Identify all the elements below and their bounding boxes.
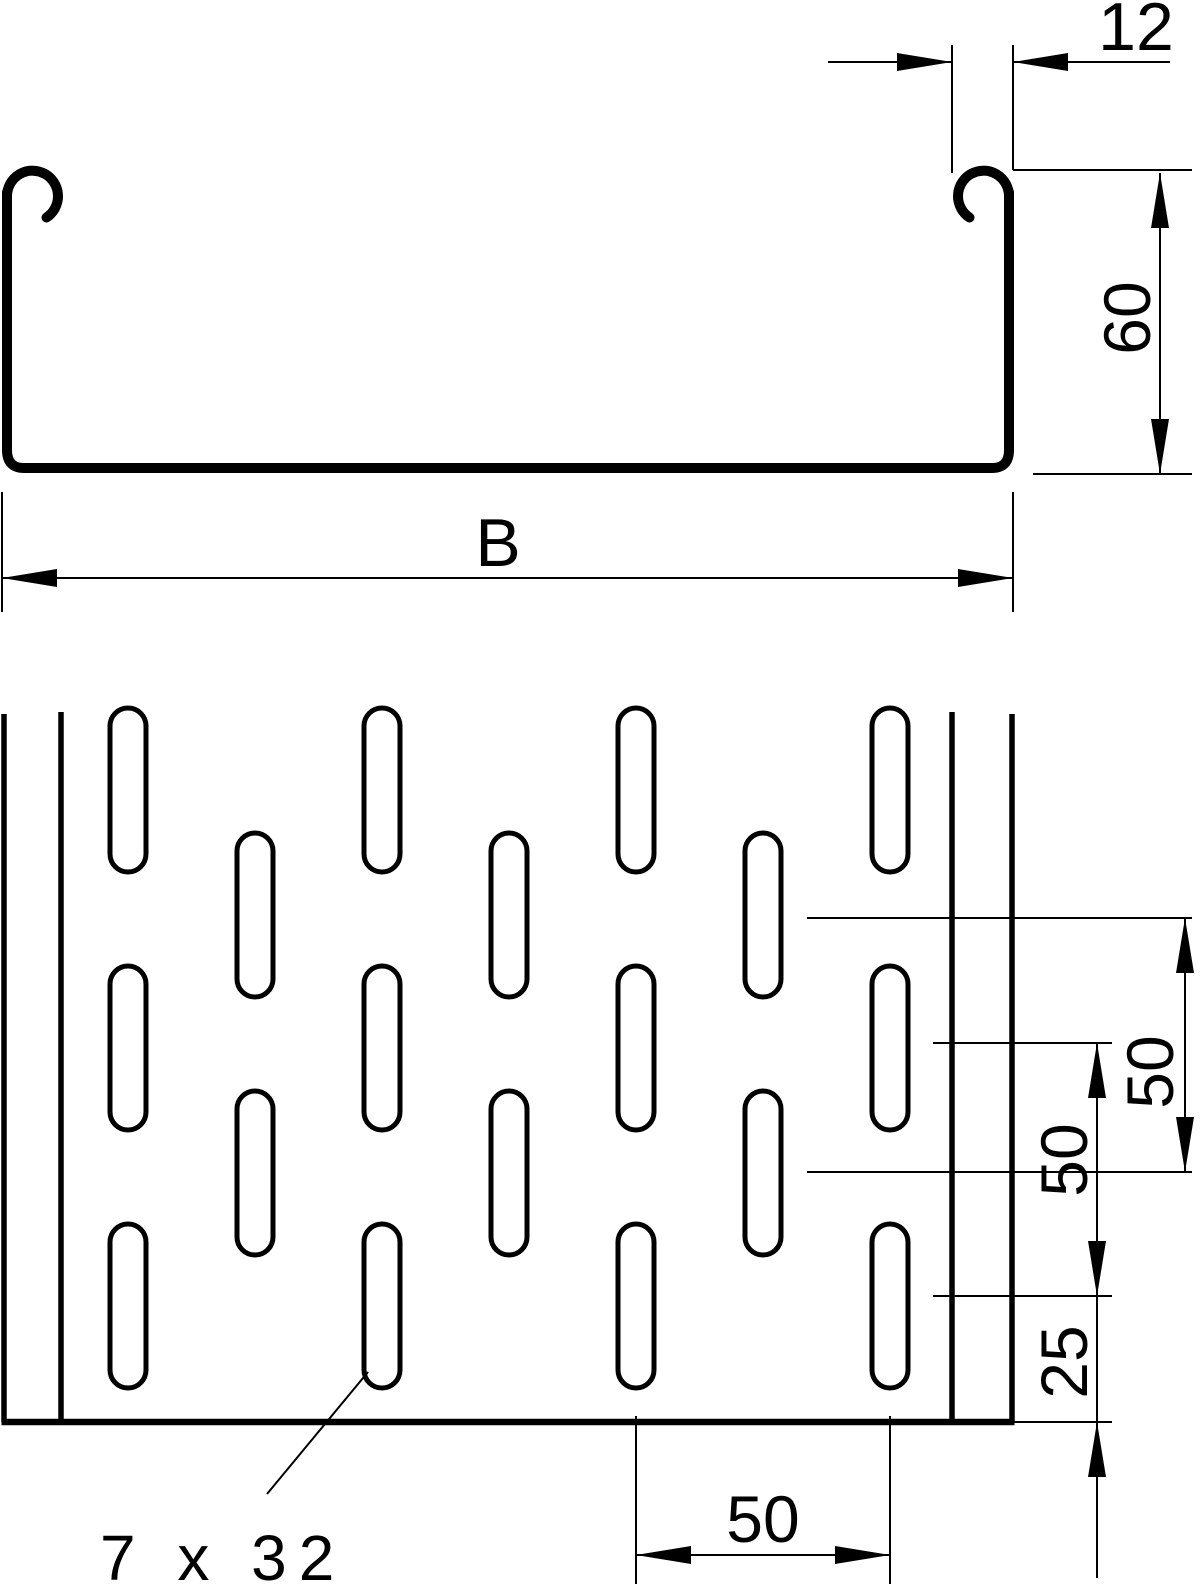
dim-label-column-pitch: 50 <box>726 1482 799 1556</box>
perforation-slot <box>110 966 146 1130</box>
arrow-12-right <box>1013 53 1068 71</box>
arrow-50-inner-top <box>1088 1043 1106 1098</box>
perforation-slot <box>618 708 654 872</box>
perforation-slot <box>745 1091 781 1255</box>
arrow-B-left <box>2 569 57 587</box>
cross-section-view <box>7 171 1009 468</box>
perforation-slots <box>110 708 908 1388</box>
arrow-25-bottom <box>1088 1422 1106 1477</box>
plan-view <box>2 708 1015 1422</box>
arrow-60-top <box>1151 173 1169 228</box>
drawing-sheet: 12 60 B 50 50 25 50 7 x 32 <box>0 0 1201 1584</box>
perforation-slot <box>364 708 400 872</box>
perforation-slot <box>872 1224 908 1388</box>
profile-right-curl <box>958 171 1009 218</box>
profile-left-curl <box>7 171 58 218</box>
perforation-slot <box>872 966 908 1130</box>
arrow-50-inner-bottom <box>1088 1241 1106 1296</box>
perforation-slot <box>618 966 654 1130</box>
perforation-slot <box>364 1224 400 1388</box>
perforation-slot <box>618 1224 654 1388</box>
dimension-arrowheads <box>2 53 1194 1564</box>
perforation-slot <box>491 833 527 997</box>
arrow-50-bottom-left <box>636 1546 691 1564</box>
technical-drawing-canvas: 12 60 B 50 50 25 50 7 x 32 <box>0 0 1201 1584</box>
dim-label-lip-width: 12 <box>1098 0 1174 65</box>
perforation-slot <box>872 708 908 872</box>
slot-leader-line <box>267 1372 368 1494</box>
perforation-slot <box>491 1091 527 1255</box>
arrow-50-bottom-right <box>835 1546 890 1564</box>
dim-label-row-pitch-inner: 50 <box>1027 1123 1101 1196</box>
perforation-slot <box>237 833 273 997</box>
arrow-B-right <box>958 569 1013 587</box>
perforation-slot <box>110 1224 146 1388</box>
dim-label-height: 60 <box>1090 281 1164 354</box>
arrow-60-bottom <box>1151 419 1169 474</box>
perforation-slot <box>364 966 400 1130</box>
arrow-50-outer-top <box>1176 918 1194 973</box>
arrow-50-outer-bottom <box>1176 1117 1194 1172</box>
profile-channel-body <box>7 192 1009 468</box>
perforation-slot <box>745 833 781 997</box>
dim-label-row-pitch-outer: 50 <box>1113 1035 1187 1108</box>
perforation-slot <box>110 708 146 872</box>
perforation-slot <box>237 1091 273 1255</box>
slot-size-label: 7 x 32 <box>100 1522 346 1584</box>
dim-label-width-B: B <box>475 505 520 581</box>
dim-label-end-margin: 25 <box>1027 1325 1101 1398</box>
arrow-12-left <box>897 53 952 71</box>
